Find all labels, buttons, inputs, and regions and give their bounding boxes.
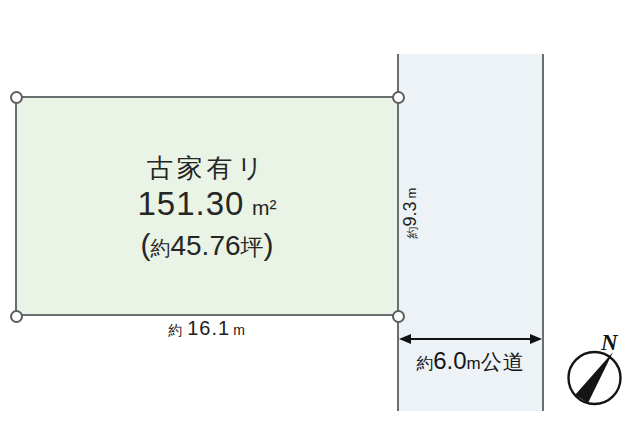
corner-marker-top-right (392, 91, 405, 104)
depth-approx: 約 (405, 226, 419, 238)
corner-marker-bottom-right (392, 310, 405, 323)
corner-marker-bottom-left (10, 310, 23, 323)
frontage-dimension-label: 約16.1m (15, 317, 399, 340)
plot-info: 古家有リ 151.30 m² (約45.76坪) (57, 153, 357, 265)
north-label: N (600, 330, 619, 355)
area-value: 151.30 (137, 185, 244, 222)
tsubo-close-paren: ) (264, 228, 274, 261)
double-arrow-icon (397, 331, 544, 347)
tsubo-value: 45.76 (170, 230, 240, 261)
compass-needle (575, 352, 613, 403)
land-plot-diagram: 古家有リ 151.30 m² (約45.76坪) 約16.1m 約9.3m 約6… (0, 0, 634, 442)
frontage-value: 16.1 (187, 317, 230, 339)
area-unit: m² (252, 196, 277, 219)
road-unit: m (467, 354, 481, 373)
road-value: 6.0 (433, 347, 466, 374)
area-square-meters: 151.30 m² (57, 185, 357, 227)
corner-marker-top-left (10, 91, 23, 104)
tsubo-approx: 約 (150, 237, 170, 259)
frontage-approx: 約 (168, 322, 183, 338)
road-width-label: 約6.0m公道 (397, 347, 544, 376)
road-approx: 約 (416, 354, 433, 373)
tsubo-unit: 坪 (241, 234, 264, 260)
compass-icon: N (560, 326, 632, 414)
frontage-unit: m (233, 322, 246, 338)
tsubo-open-paren: ( (140, 228, 150, 261)
road-type: 公道 (481, 350, 525, 373)
area-tsubo: (約45.76坪) (57, 228, 357, 265)
depth-unit: m (404, 188, 419, 199)
depth-value: 9.3 (400, 201, 420, 226)
building-note: 古家有リ (57, 153, 357, 183)
depth-dimension-label: 約9.3m (396, 178, 424, 248)
